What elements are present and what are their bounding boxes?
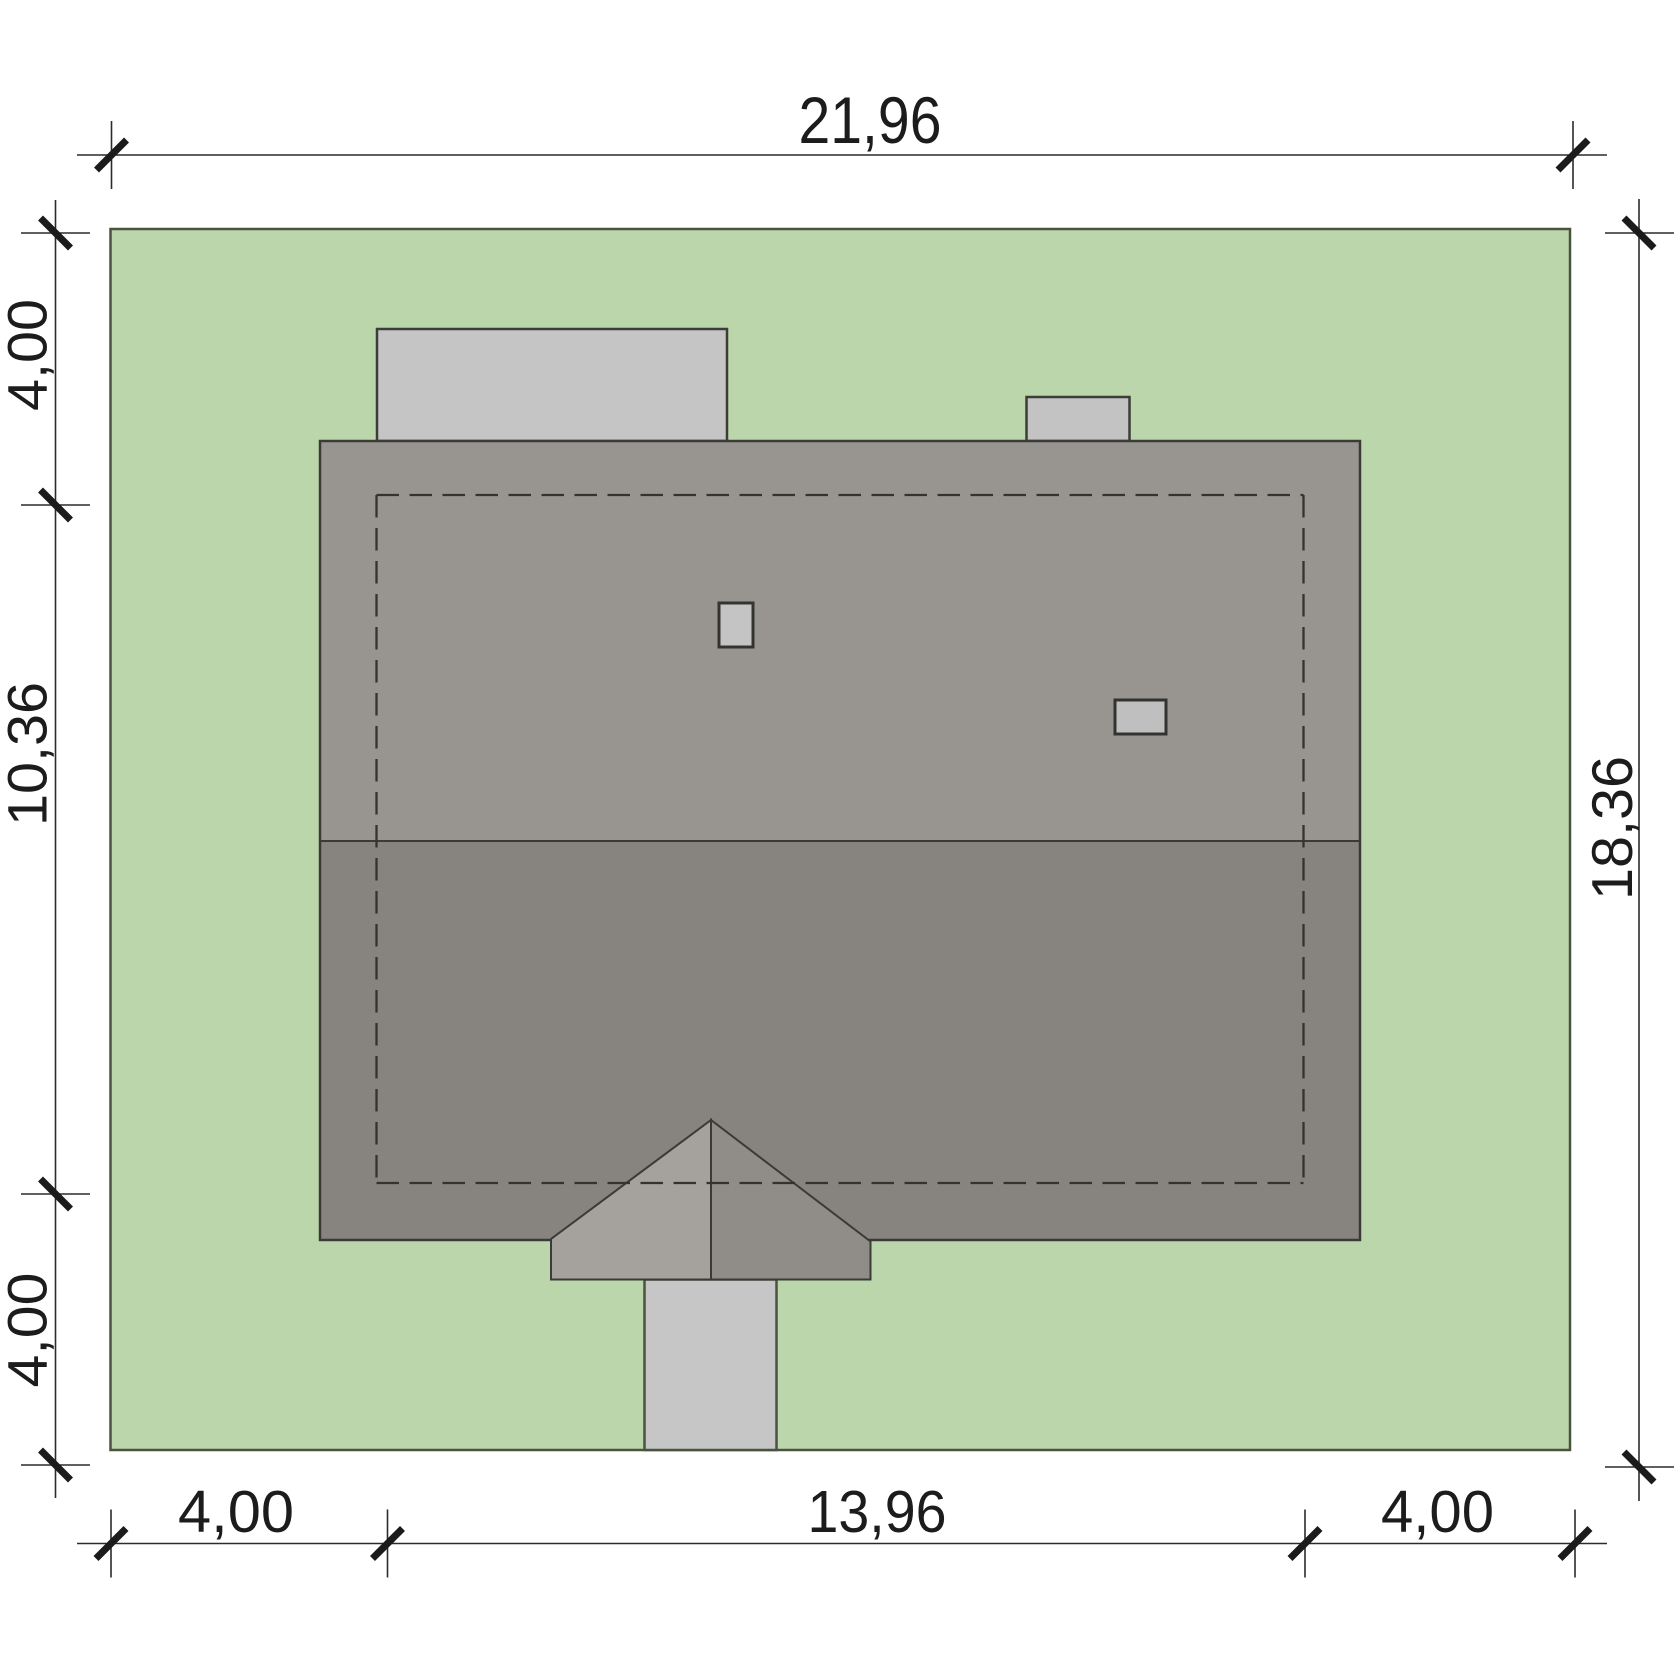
svg-text:10,36: 10,36	[0, 682, 59, 826]
svg-text:4,00: 4,00	[0, 1273, 59, 1388]
svg-text:4,00: 4,00	[0, 299, 59, 411]
svg-text:21,96: 21,96	[799, 84, 942, 158]
svg-text:13,96: 13,96	[808, 1478, 947, 1545]
svg-text:18,36: 18,36	[1581, 756, 1645, 900]
svg-text:4,00: 4,00	[178, 1478, 294, 1545]
svg-text:4,00: 4,00	[1381, 1478, 1494, 1545]
